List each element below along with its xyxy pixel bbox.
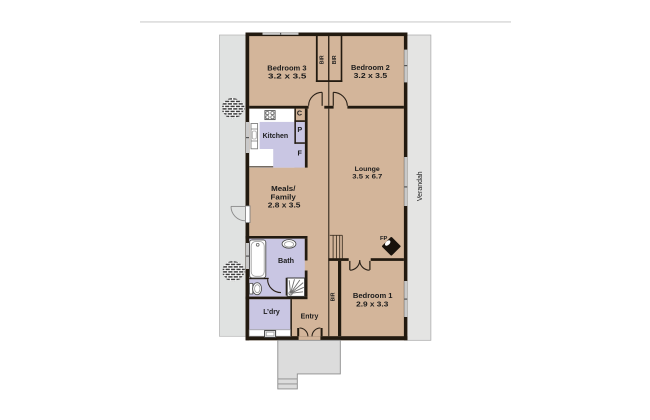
svg-text:2.9 x 3.3: 2.9 x 3.3 (356, 299, 388, 308)
svg-text:Meals/: Meals/ (271, 184, 295, 193)
svg-text:F: F (298, 149, 303, 158)
svg-text:3.5 x 6.7: 3.5 x 6.7 (352, 173, 382, 180)
svg-text:BIR: BIR (331, 292, 337, 302)
svg-text:Lounge: Lounge (355, 166, 380, 173)
svg-text:3.2 x 3.5: 3.2 x 3.5 (354, 71, 388, 80)
svg-text:L’dry: L’dry (263, 307, 280, 316)
svg-text:P: P (297, 125, 302, 134)
svg-text:Entry: Entry (301, 312, 320, 321)
svg-text:Bath: Bath (278, 256, 294, 265)
svg-text:3.2 x 3.5: 3.2 x 3.5 (268, 71, 306, 80)
svg-text:Verandah: Verandah (415, 171, 424, 201)
svg-text:2.8 x 3.5: 2.8 x 3.5 (268, 201, 301, 210)
svg-text:Kitchen: Kitchen (263, 131, 289, 140)
svg-text:FP: FP (380, 236, 388, 242)
svg-text:BIR: BIR (332, 55, 338, 65)
svg-text:C: C (297, 109, 302, 118)
svg-text:BIR: BIR (320, 55, 326, 65)
